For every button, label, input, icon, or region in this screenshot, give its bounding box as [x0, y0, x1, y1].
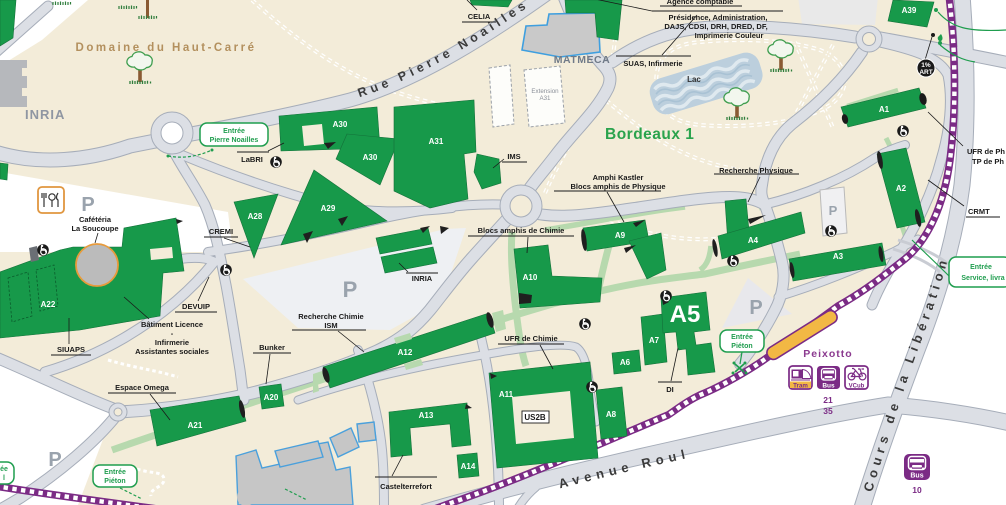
svg-text:DI: DI: [666, 385, 674, 394]
svg-text:CREMI: CREMI: [209, 227, 233, 236]
svg-text:SUAS, Infirmerie: SUAS, Infirmerie: [623, 59, 682, 68]
svg-text:La Soucoupe: La Soucoupe: [71, 224, 118, 233]
svg-text:P: P: [48, 449, 61, 471]
svg-text:A3: A3: [833, 252, 844, 261]
svg-text:ART: ART: [919, 69, 932, 76]
svg-text:Amphi Kastler: Amphi Kastler: [593, 173, 644, 182]
svg-text:A31: A31: [539, 95, 551, 102]
svg-text:Présidence, Administration,: Présidence, Administration,: [669, 13, 768, 22]
svg-text:P: P: [749, 297, 762, 319]
svg-text:Blocs amphis de Chimie: Blocs amphis de Chimie: [478, 226, 565, 235]
svg-text:35: 35: [823, 406, 833, 416]
svg-text:Imprimerie Couleur: Imprimerie Couleur: [695, 31, 764, 40]
svg-text:CRMT: CRMT: [968, 207, 990, 216]
svg-text:A7: A7: [649, 336, 660, 345]
svg-text:Entrée: Entrée: [223, 128, 245, 135]
svg-text:UFR de Chimie: UFR de Chimie: [504, 334, 557, 343]
svg-text:SIUAPS: SIUAPS: [57, 345, 85, 354]
svg-text:A12: A12: [398, 348, 413, 357]
svg-text:Piéton: Piéton: [731, 343, 752, 350]
svg-text:ée: ée: [0, 466, 8, 473]
svg-text:Service, livra: Service, livra: [961, 275, 1004, 282]
svg-text:DEVUIP: DEVUIP: [182, 302, 210, 311]
svg-text:A20: A20: [264, 393, 279, 402]
svg-text:A11: A11: [499, 390, 514, 399]
svg-text:A29: A29: [321, 204, 336, 213]
svg-text:A2: A2: [896, 184, 907, 193]
svg-text:Bus: Bus: [910, 473, 923, 480]
svg-text:INRIA: INRIA: [412, 274, 433, 283]
svg-text:P: P: [81, 194, 94, 216]
svg-text:Castelterrefort: Castelterrefort: [380, 482, 432, 491]
svg-text:IMS: IMS: [507, 152, 520, 161]
svg-text:Recherche Chimie: Recherche Chimie: [298, 312, 363, 321]
svg-text:Peixotto: Peixotto: [803, 348, 852, 360]
svg-text:Assistantes sociales: Assistantes sociales: [135, 347, 209, 356]
svg-text:P: P: [829, 203, 838, 218]
svg-text:A8: A8: [606, 410, 617, 419]
svg-text:Lac: Lac: [687, 75, 701, 84]
svg-text:Domaine du Haut-Carré: Domaine du Haut-Carré: [76, 42, 257, 54]
svg-text:A31: A31: [429, 137, 444, 146]
svg-text:Bordeaux 1: Bordeaux 1: [605, 126, 694, 143]
svg-text:A6: A6: [620, 358, 631, 367]
svg-text:Extension: Extension: [531, 88, 559, 95]
svg-text:A30: A30: [363, 153, 378, 162]
svg-text:A4: A4: [748, 236, 759, 245]
svg-text:Agence comptable: Agence comptable: [667, 0, 734, 6]
svg-text:A39: A39: [902, 6, 917, 15]
svg-text:Entrée: Entrée: [104, 469, 126, 476]
svg-text:A21: A21: [188, 421, 203, 430]
svg-text:DAJS, CDSI, DRH, DRED, DF,: DAJS, CDSI, DRH, DRED, DF,: [664, 22, 767, 31]
svg-text:A10: A10: [523, 273, 538, 282]
svg-text:A13: A13: [419, 411, 434, 420]
svg-text:A30: A30: [333, 120, 348, 129]
svg-text:Entrée: Entrée: [731, 334, 753, 341]
svg-text:CELIA: CELIA: [468, 12, 491, 21]
svg-text:21: 21: [823, 395, 833, 405]
svg-text:A22: A22: [41, 300, 56, 309]
svg-text:Entrée: Entrée: [970, 264, 992, 271]
svg-text:10: 10: [912, 485, 922, 495]
svg-text:P: P: [343, 277, 358, 302]
svg-text:Infirmerie: Infirmerie: [155, 338, 189, 347]
svg-text:1%: 1%: [921, 62, 931, 69]
svg-text:Pierre Noailles: Pierre Noailles: [210, 137, 259, 144]
svg-text:Bus: Bus: [822, 383, 835, 390]
svg-text:Blocs amphis de Physique: Blocs amphis de Physique: [570, 182, 665, 191]
svg-text:UFR de Ph: UFR de Ph: [967, 147, 1005, 156]
svg-text:INRIA: INRIA: [25, 107, 65, 122]
svg-text:Bunker: Bunker: [259, 343, 285, 352]
svg-text:A9: A9: [615, 231, 626, 240]
svg-text:VCub: VCub: [849, 384, 865, 390]
svg-text:LaBRI: LaBRI: [241, 155, 263, 164]
svg-text:ISM: ISM: [324, 321, 337, 330]
svg-text:US2B: US2B: [524, 413, 546, 422]
svg-text:Bâtiment Licence: Bâtiment Licence: [141, 320, 203, 329]
svg-text:MATMECA: MATMECA: [554, 54, 610, 66]
svg-text:Cafétéria: Cafétéria: [79, 215, 112, 224]
svg-text:Espace Omega: Espace Omega: [115, 383, 170, 392]
svg-text:A14: A14: [461, 462, 476, 471]
svg-text:A1: A1: [879, 105, 890, 114]
svg-text:A5: A5: [670, 301, 701, 328]
svg-text:Piéton: Piéton: [104, 478, 125, 485]
svg-text:A28: A28: [248, 212, 263, 221]
svg-text:TP de Ph: TP de Ph: [972, 157, 1004, 166]
svg-text:l: l: [3, 475, 5, 482]
svg-text:Tram: Tram: [793, 383, 808, 390]
